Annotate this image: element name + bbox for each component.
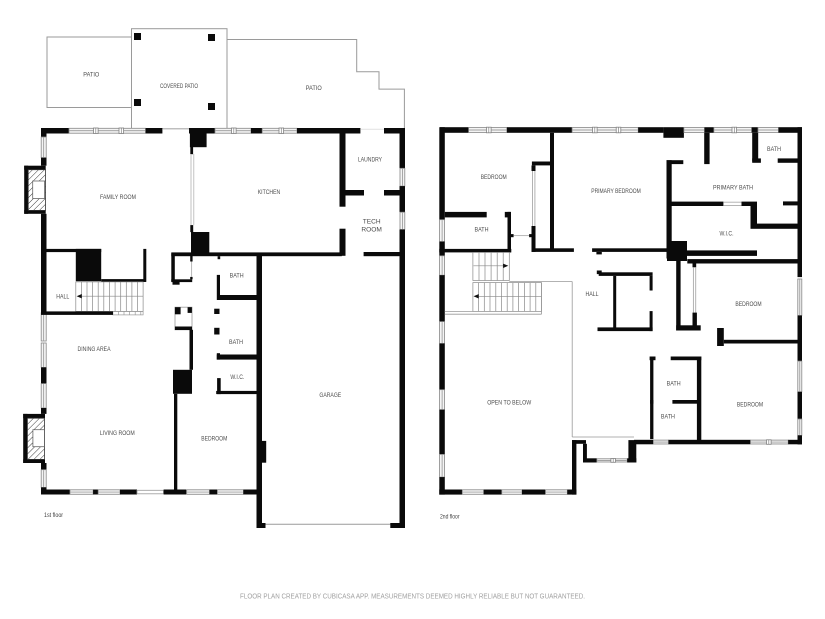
svg-text:BATH: BATH xyxy=(661,413,675,420)
svg-text:W.I.C.: W.I.C. xyxy=(720,231,734,238)
svg-text:BEDROOM: BEDROOM xyxy=(201,435,227,442)
svg-text:BEDROOM: BEDROOM xyxy=(737,401,763,408)
svg-text:FLOOR PLAN CREATED BY CUBICASA: FLOOR PLAN CREATED BY CUBICASA APP. MEAS… xyxy=(240,594,585,601)
svg-text:BEDROOM: BEDROOM xyxy=(735,301,761,308)
svg-text:FAMILY ROOM: FAMILY ROOM xyxy=(100,194,136,201)
svg-text:COVERED PATIO: COVERED PATIO xyxy=(160,83,198,90)
svg-text:1st floor: 1st floor xyxy=(44,512,64,519)
svg-text:BATH: BATH xyxy=(230,273,244,280)
svg-text:PATIO: PATIO xyxy=(83,71,99,78)
svg-text:HALL: HALL xyxy=(586,291,599,298)
svg-text:BATH: BATH xyxy=(767,146,781,153)
svg-text:PRIMARY BEDROOM: PRIMARY BEDROOM xyxy=(591,188,641,195)
svg-text:TECH: TECH xyxy=(363,219,381,226)
svg-text:GARAGE: GARAGE xyxy=(319,392,341,399)
svg-text:ROOM: ROOM xyxy=(361,227,382,234)
svg-text:LIVING ROOM: LIVING ROOM xyxy=(100,430,135,437)
svg-text:PRIMARY BATH: PRIMARY BATH xyxy=(713,185,753,192)
svg-text:OPEN TO BELOW: OPEN TO BELOW xyxy=(487,399,532,406)
svg-text:KITCHEN: KITCHEN xyxy=(258,189,281,196)
svg-text:LAUNDRY: LAUNDRY xyxy=(358,157,383,164)
svg-text:W.I.C.: W.I.C. xyxy=(230,374,244,381)
svg-text:HALL: HALL xyxy=(56,294,69,301)
svg-text:PATIO: PATIO xyxy=(306,85,322,92)
svg-text:BATH: BATH xyxy=(475,227,489,234)
svg-text:DINING AREA: DINING AREA xyxy=(78,346,112,353)
svg-text:2nd floor: 2nd floor xyxy=(440,513,460,520)
svg-text:BATH: BATH xyxy=(229,339,243,346)
svg-text:BEDROOM: BEDROOM xyxy=(481,174,507,181)
svg-text:BATH: BATH xyxy=(667,381,681,388)
